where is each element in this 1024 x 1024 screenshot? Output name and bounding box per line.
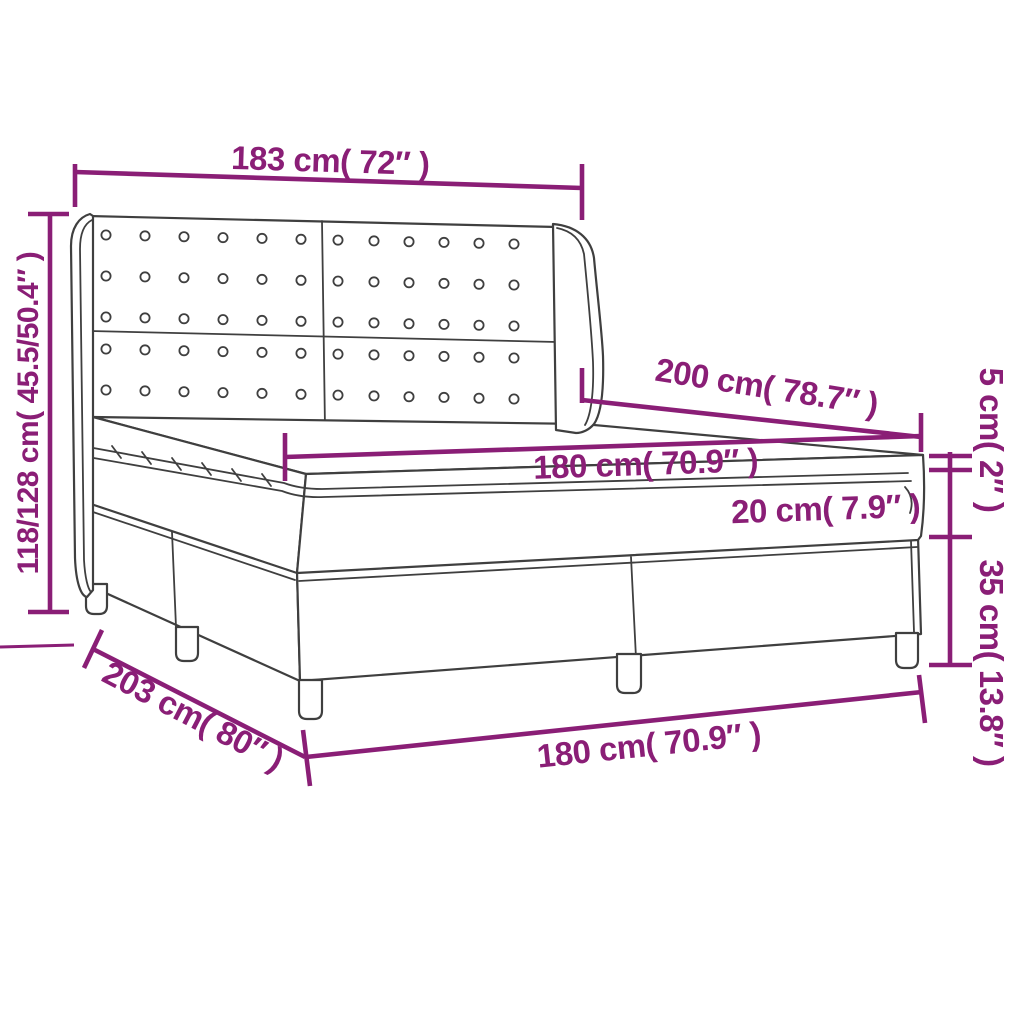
headboard-button bbox=[404, 351, 413, 360]
headboard-button bbox=[369, 318, 378, 327]
dim-base-width: 180 cm( 70.9″ ) bbox=[303, 675, 925, 786]
headboard-button bbox=[179, 346, 188, 355]
headboard-button bbox=[439, 279, 448, 288]
bed-drawing bbox=[71, 214, 924, 719]
headboard-button bbox=[257, 275, 266, 284]
headboard-button bbox=[404, 392, 413, 401]
headboard-button bbox=[474, 280, 483, 289]
headboard-button bbox=[179, 232, 188, 241]
dim-bed-length: 200 cm( 78.7″ ) bbox=[582, 351, 921, 437]
total-height-label: 118/128 cm( 45.5/50.4″ ) bbox=[12, 252, 45, 575]
headboard-button bbox=[140, 345, 149, 354]
headboard-button bbox=[509, 280, 518, 289]
bed-leg bbox=[176, 627, 198, 661]
headboard-button bbox=[474, 394, 483, 403]
headboard-button bbox=[179, 314, 188, 323]
base-width-label: 180 cm( 70.9″ ) bbox=[535, 714, 762, 774]
headboard-button bbox=[439, 320, 448, 329]
floor-extension-tick bbox=[0, 645, 74, 647]
headboard-button bbox=[101, 271, 110, 280]
headboard-width-label: 183 cm( 72″ ) bbox=[231, 139, 430, 182]
headboard-button bbox=[296, 276, 305, 285]
topper-height-label: 5 cm( 2″ ) bbox=[973, 368, 1010, 513]
headboard-button bbox=[509, 321, 518, 330]
headboard-button bbox=[296, 235, 305, 244]
base-height-label: 35 cm( 13.8″ ) bbox=[973, 560, 1010, 767]
headboard-button bbox=[404, 319, 413, 328]
headboard-button bbox=[101, 344, 110, 353]
headboard-button bbox=[509, 353, 518, 362]
headboard-button bbox=[140, 313, 149, 322]
headboard-button bbox=[101, 230, 110, 239]
headboard-button bbox=[439, 393, 448, 402]
headboard-button bbox=[140, 272, 149, 281]
headboard-button bbox=[333, 318, 342, 327]
headboard-button bbox=[404, 237, 413, 246]
headboard-button bbox=[257, 316, 266, 325]
headboard-button bbox=[369, 277, 378, 286]
bed-leg bbox=[617, 654, 641, 693]
dimension-diagram: 183 cm( 72″ ) 118/128 cm( 45.5/50.4″ ) 2… bbox=[0, 0, 1024, 1024]
headboard-button bbox=[296, 349, 305, 358]
headboard-button bbox=[474, 353, 483, 362]
headboard-button bbox=[369, 350, 378, 359]
headboard-button bbox=[509, 394, 518, 403]
headboard-button bbox=[509, 239, 518, 248]
bed-leg bbox=[299, 680, 322, 719]
headboard-button bbox=[140, 231, 149, 240]
headboard-button bbox=[218, 347, 227, 356]
headboard-button bbox=[333, 277, 342, 286]
dim-headboard-width: 183 cm( 72″ ) bbox=[75, 139, 582, 220]
bed-diagram-svg: 183 cm( 72″ ) 118/128 cm( 45.5/50.4″ ) 2… bbox=[0, 0, 1024, 1024]
headboard-button bbox=[218, 388, 227, 397]
headboard-button bbox=[218, 233, 227, 242]
headboard-button bbox=[257, 234, 266, 243]
headboard-button bbox=[404, 278, 413, 287]
headboard-button bbox=[296, 317, 305, 326]
headboard-button bbox=[140, 386, 149, 395]
dim-tick bbox=[919, 675, 925, 723]
headboard-button bbox=[218, 315, 227, 324]
headboard-button bbox=[101, 385, 110, 394]
headboard-button bbox=[179, 273, 188, 282]
headboard-button bbox=[179, 387, 188, 396]
headboard-button bbox=[474, 321, 483, 330]
headboard bbox=[88, 216, 560, 436]
headboard-button bbox=[369, 236, 378, 245]
headboard-button bbox=[257, 389, 266, 398]
dim-total-height: 118/128 cm( 45.5/50.4″ ) bbox=[12, 214, 69, 612]
headboard-button bbox=[333, 350, 342, 359]
headboard-button bbox=[369, 391, 378, 400]
mattress-height-label: 20 cm( 7.9″ ) bbox=[730, 487, 920, 531]
base-length-label: 203 cm( 80″ ) bbox=[97, 654, 290, 778]
headboard-button bbox=[257, 348, 266, 357]
mattress-width-label: 180 cm( 70.9″ ) bbox=[533, 441, 759, 486]
headboard-button bbox=[333, 236, 342, 245]
dim-tick bbox=[84, 630, 102, 668]
headboard-button bbox=[296, 390, 305, 399]
headboard-button bbox=[218, 274, 227, 283]
bed-leg bbox=[896, 633, 918, 668]
headboard-button bbox=[333, 391, 342, 400]
headboard-button bbox=[439, 238, 448, 247]
headboard-button bbox=[439, 352, 448, 361]
headboard-button bbox=[474, 239, 483, 248]
headboard-button bbox=[101, 312, 110, 321]
